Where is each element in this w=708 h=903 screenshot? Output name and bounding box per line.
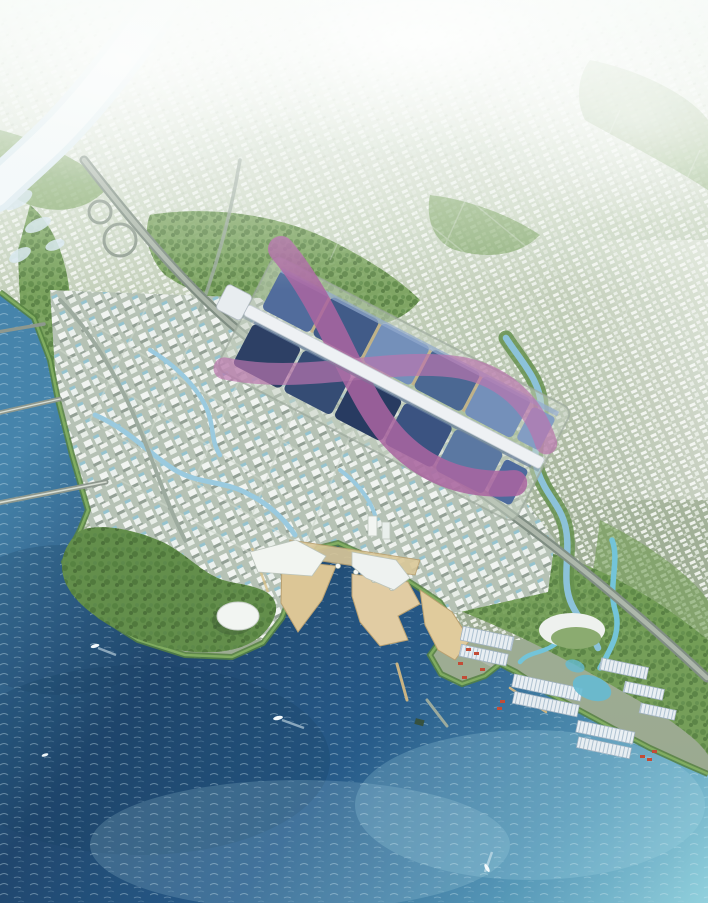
haze (0, 0, 708, 903)
aerial-rendering (0, 0, 708, 903)
